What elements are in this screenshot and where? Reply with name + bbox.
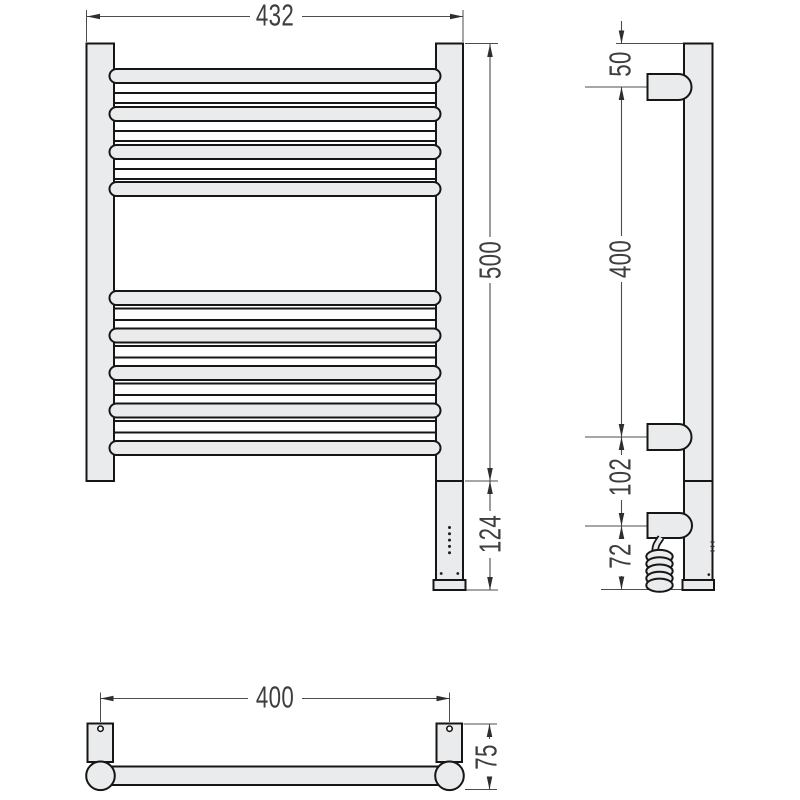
post-side xyxy=(684,44,713,482)
dim-label-mounting-centers: 400 xyxy=(256,682,294,713)
dim-label-height: 500 xyxy=(475,241,506,279)
post-section-left xyxy=(86,762,115,791)
bottom-view xyxy=(86,724,464,791)
left-post xyxy=(87,44,115,482)
wall-bracket-upper xyxy=(648,74,692,100)
straight-rail xyxy=(114,346,436,358)
bowed-rail xyxy=(110,291,441,305)
dim-label-wall-offset: 75 xyxy=(471,744,502,770)
dim-label-power-box-to-bottom: 72 xyxy=(605,543,636,569)
bowed-rail xyxy=(110,107,441,121)
dim-label-heater-section: 124 xyxy=(475,515,506,553)
heater-end-cap-front xyxy=(434,580,466,590)
power-cable-coil xyxy=(646,538,672,592)
bowed-rail xyxy=(110,366,441,380)
power-connection-box xyxy=(648,513,693,538)
post-section-right xyxy=(435,762,464,791)
bowed-rail xyxy=(110,145,441,159)
straight-rail xyxy=(114,421,436,433)
towel-rail-technical-drawing: 432 500 124 50 400 102 72 400 75 xyxy=(0,0,800,800)
right-post xyxy=(436,44,463,482)
straight-rail xyxy=(114,309,436,321)
bowed-rail xyxy=(110,69,441,83)
bowed-rail xyxy=(110,329,441,343)
mounting-hole-right xyxy=(447,726,452,731)
bowed-rail xyxy=(110,404,441,418)
heater-end-cap-side xyxy=(683,580,715,590)
mounting-hole-left xyxy=(98,726,103,731)
cross-rail-top-view xyxy=(100,767,450,786)
drawing-canvas xyxy=(0,0,800,800)
dim-label-lower-bracket-to-power-box: 102 xyxy=(605,458,636,496)
straight-rail xyxy=(114,384,436,396)
straight-rail xyxy=(114,169,436,179)
dim-label-bracket-spacing: 400 xyxy=(605,240,636,278)
dimension-annotations xyxy=(87,10,684,790)
straight-rail xyxy=(114,131,436,141)
wall-bracket-lower xyxy=(648,424,692,450)
front-view xyxy=(87,44,466,591)
bowed-rail xyxy=(110,441,441,455)
straight-rail xyxy=(114,93,436,103)
bowed-rail xyxy=(110,182,441,196)
heater-housing-front xyxy=(436,481,463,580)
dim-label-overall-width: 432 xyxy=(256,0,294,31)
dim-label-top-to-upper-bracket: 50 xyxy=(605,51,636,77)
side-view xyxy=(646,44,714,592)
